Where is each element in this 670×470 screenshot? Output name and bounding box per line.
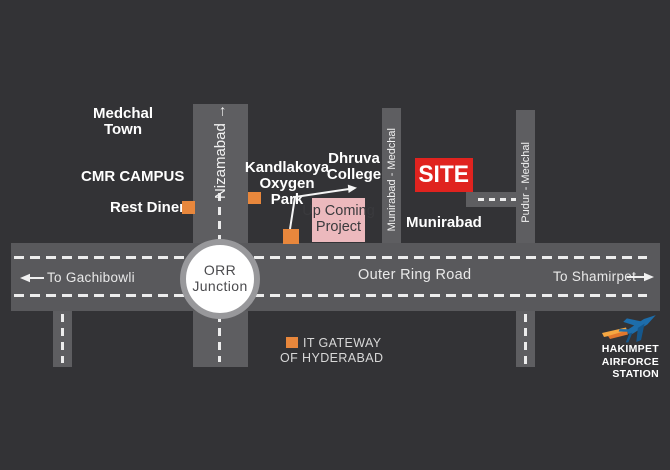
lane-dash-connector (478, 198, 516, 201)
label-medchal-town: Medchal Town (73, 106, 173, 138)
lane-dash-top (14, 256, 647, 259)
site-badge: SITE (415, 158, 473, 192)
road-label-to-shamirpet: To Shamirpet (553, 270, 636, 285)
label-rest-diner: Rest Diner (110, 200, 185, 216)
road-label-pudur-medchal: Pudur - Medchal (516, 120, 535, 244)
label-it-gateway-line1: IT GATEWAY (303, 336, 382, 350)
lane-dash-left-stub (61, 314, 64, 363)
lane-dash-nizamabad-upper (218, 193, 221, 241)
label-dhruva-college: Dhruva College (326, 151, 382, 183)
road-label-nizamabad: Nizamabad → (193, 106, 248, 198)
upcoming-project-marker-icon (283, 229, 299, 244)
label-it-gateway-line2: OF HYDERABAD (280, 351, 383, 365)
lane-dash-nizamabad-stub (218, 314, 221, 362)
label-munirabad: Munirabad (406, 215, 482, 231)
it-gateway-marker-icon (286, 337, 298, 348)
lane-dash-bottom (14, 294, 647, 297)
road-label-to-gachibowli: To Gachibowli (47, 271, 135, 286)
site-location-map: ORR Junction Nizamabad → Munirabad - Med… (0, 0, 670, 470)
lane-dash-pudur-stub (524, 314, 527, 364)
kandlakoya-marker-icon (248, 192, 261, 204)
orr-junction-line2: Junction (192, 279, 247, 295)
rest-diner-marker-icon (182, 201, 195, 214)
road-label-outer-ring-road: Outer Ring Road (358, 268, 471, 284)
label-hakimpet-airforce-station: HAKIMPET AIRFORCE STATION (555, 343, 659, 381)
road-label-munirabad-medchal: Munirabad - Medchal (382, 118, 401, 242)
orr-junction-line1: ORR (204, 263, 236, 279)
label-cmr-campus: CMR CAMPUS (81, 169, 184, 185)
upcoming-project-box: Up Coming Project (312, 198, 365, 242)
orr-junction-badge: ORR Junction (180, 239, 260, 319)
